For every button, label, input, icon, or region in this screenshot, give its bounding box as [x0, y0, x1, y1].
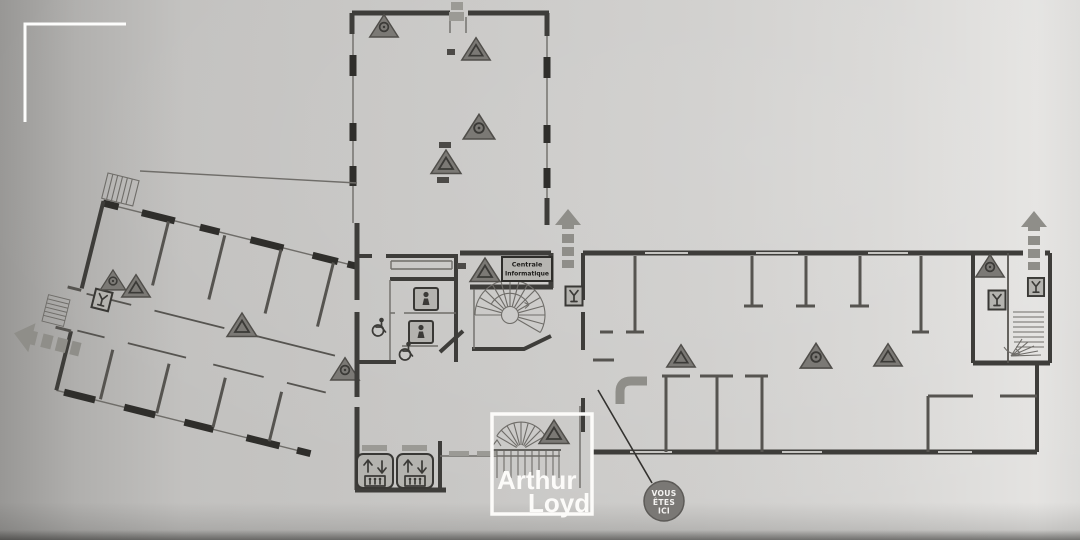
- wall-segment: [56, 286, 82, 331]
- door-leaf: [402, 445, 427, 451]
- room-label-line2: Informatique: [505, 270, 550, 278]
- you-are-here-marker: VOUS ÊTES ICI: [598, 390, 684, 521]
- toilet-icon: [414, 288, 438, 310]
- toilet-icon: [409, 321, 433, 343]
- corridor-wall: [77, 294, 335, 393]
- warning-triangle-icon: [800, 343, 832, 368]
- warning-triangle-icon: [539, 420, 569, 444]
- warning-triangle-icon: [462, 38, 491, 60]
- stairs-icon: [42, 295, 70, 327]
- warning-triangle-icon: [470, 258, 500, 282]
- photo-edge-shadow: [0, 530, 1080, 540]
- top-wing: [352, 2, 549, 225]
- warning-triangle-icon: [667, 345, 696, 367]
- central-block: Centrale Informatique: [355, 223, 580, 490]
- floorplan-photo: Centrale Informatique: [0, 0, 1080, 540]
- wheelchair-icon: [373, 318, 386, 336]
- exit-arrow-icon: [555, 209, 581, 268]
- exit-arrow-icon: [1021, 211, 1047, 270]
- door-leaf: [477, 451, 497, 456]
- window-pier: [56, 203, 357, 454]
- wheelchair-icon: [400, 342, 413, 360]
- warning-triangle-icon: [370, 15, 399, 37]
- right-wing: [583, 253, 1050, 452]
- wall-segment: [353, 34, 547, 223]
- leader-line: [598, 390, 652, 483]
- exit-arrow-icon: [10, 319, 83, 364]
- wall-mark: [437, 177, 449, 183]
- door-leaf: [449, 451, 469, 456]
- warning-triangle-icon: [100, 270, 126, 290]
- warning-triangle-icon: [976, 255, 1005, 277]
- door-leaf: [362, 445, 387, 451]
- fire-call-point-icon: [566, 287, 583, 306]
- left-wing: [41, 197, 358, 453]
- arthur-loyd-logo: Arthur Loyd: [492, 414, 592, 518]
- boundary-line: [140, 171, 357, 183]
- warning-triangle-icon: [874, 344, 903, 366]
- wall-segment: [56, 203, 357, 454]
- wall-mark: [447, 49, 455, 55]
- you-are-here-line3: ICI: [658, 507, 670, 516]
- door-leaf: [451, 2, 463, 10]
- room-label-line1: Centrale: [512, 261, 543, 269]
- warning-triangle-icon: [122, 275, 151, 297]
- logo-line2: Loyd: [528, 488, 590, 518]
- wall-mark: [439, 142, 451, 148]
- bench: [391, 261, 452, 269]
- warning-triangle-icon: [463, 114, 495, 139]
- door-leaf: [449, 12, 464, 21]
- corridor-turn-arrow: [620, 381, 647, 404]
- room-label: Centrale Informatique: [502, 257, 552, 281]
- elevator-icon: [397, 454, 433, 488]
- you-are-here-line1: VOUS: [651, 489, 676, 498]
- warning-triangle-icon: [227, 313, 257, 337]
- fire-call-point-icon: [1028, 278, 1044, 296]
- stairs-icon: [1004, 312, 1044, 356]
- wall-mark: [457, 263, 466, 269]
- fire-call-point-icon: [989, 291, 1006, 310]
- fire-call-point-icon: [91, 289, 112, 312]
- elevator-icon: [357, 454, 393, 488]
- warning-triangle-icon: [431, 150, 461, 174]
- crop-corner-icon: [25, 24, 126, 122]
- wall-segment: [352, 13, 549, 225]
- floor-plan: Centrale Informatique: [0, 0, 1080, 540]
